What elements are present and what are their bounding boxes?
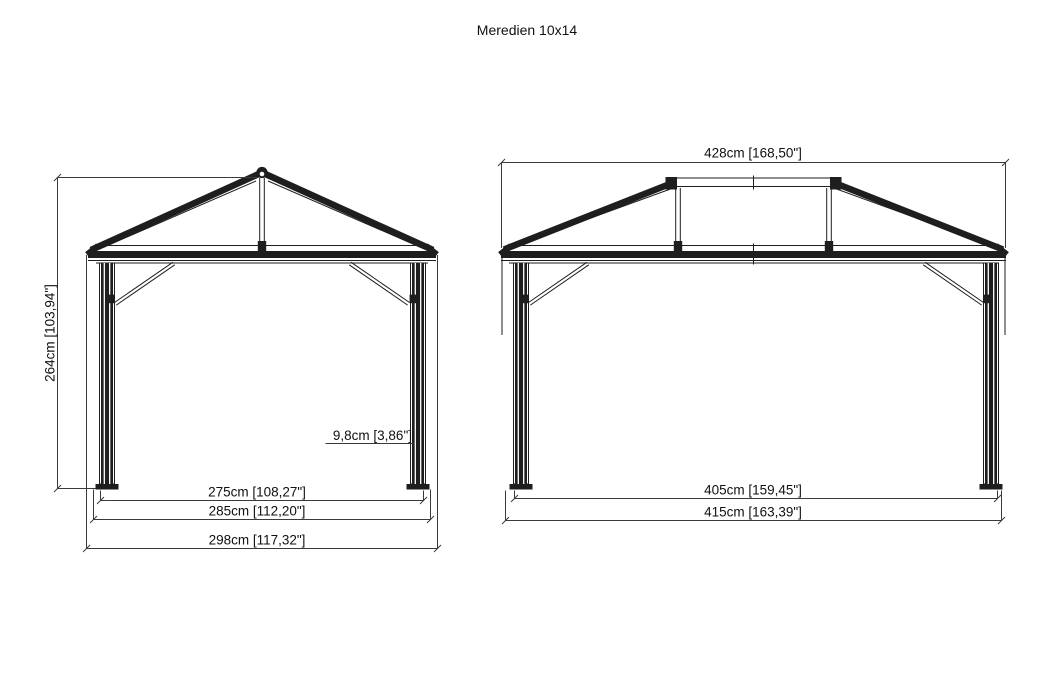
rafter-left [91, 173, 262, 251]
brace-line [923, 265, 982, 305]
front-width-dimensions: 275cm [108,27"] 285cm [112,20"] 298cm [1… [83, 255, 441, 552]
front-roof [91, 167, 433, 251]
side-eave-beam [500, 244, 1007, 336]
side-braces [520, 262, 992, 305]
drawing-title: Meredien 10x14 [477, 22, 578, 38]
front-post-width-label: 9,8cm [3,86"] [326, 428, 414, 444]
brace-line [925, 262, 984, 302]
post-width-text: 9,8cm [3,86"] [333, 428, 412, 443]
brace-line [529, 262, 588, 302]
rafter-left-underside [103, 181, 256, 248]
rafter-right [262, 173, 433, 251]
inner-width-text: 405cm [159,45"] [704, 483, 802, 498]
side-roof-dimension: 428cm [168,50"] [498, 146, 1009, 249]
side-width-dimensions: 405cm [159,45"] 415cm [163,39"] [502, 483, 1005, 525]
brace-bracket [984, 295, 993, 304]
brace-line [351, 262, 410, 302]
ridge-cap-left [666, 177, 678, 190]
outer-width-text: 415cm [163,39"] [704, 505, 802, 520]
technical-drawing: Meredien 10x14 [0, 0, 1055, 692]
outer-width-text: 298cm [117,32"] [209, 533, 306, 548]
rafter-right-underside [831, 187, 997, 248]
front-view: 264cm [103,94"] 9,8cm [3,86"] 275cm [108… [43, 167, 442, 552]
inner-width-text: 275cm [108,27"] [208, 485, 306, 500]
drawing-sheet: Meredien 10x14 [0, 0, 1055, 692]
brace-bracket [106, 295, 115, 304]
brace-line [116, 265, 175, 305]
rafter-right-underside [268, 181, 421, 248]
brace-line [530, 265, 589, 305]
side-view: 428cm [168,50"] 405cm [159,45"] 415cm [1… [498, 146, 1009, 525]
brace-line [349, 265, 408, 305]
mid-width-text: 285cm [112,20"] [209, 504, 306, 519]
eave-band [88, 251, 436, 258]
rafter-left-underside [510, 187, 676, 248]
roof-width-text: 428cm [168,50"] [704, 146, 802, 161]
base-plate-right [980, 484, 1003, 490]
hip-rafter-left [504, 184, 671, 250]
front-posts [96, 263, 430, 490]
brace-line [115, 262, 174, 302]
brace-bracket [520, 295, 529, 304]
side-posts [510, 263, 1003, 490]
base-plate-left [510, 484, 533, 490]
side-roof [504, 176, 1003, 252]
ridge-cap-right [830, 177, 842, 190]
base-plate-right [407, 484, 430, 490]
base-plate-left [96, 484, 119, 490]
hip-rafter-right [836, 184, 1003, 250]
height-dimension-text: 264cm [103,94"] [43, 284, 58, 382]
brace-bracket [410, 295, 419, 304]
peak-hole [260, 172, 265, 177]
front-braces [106, 262, 418, 305]
